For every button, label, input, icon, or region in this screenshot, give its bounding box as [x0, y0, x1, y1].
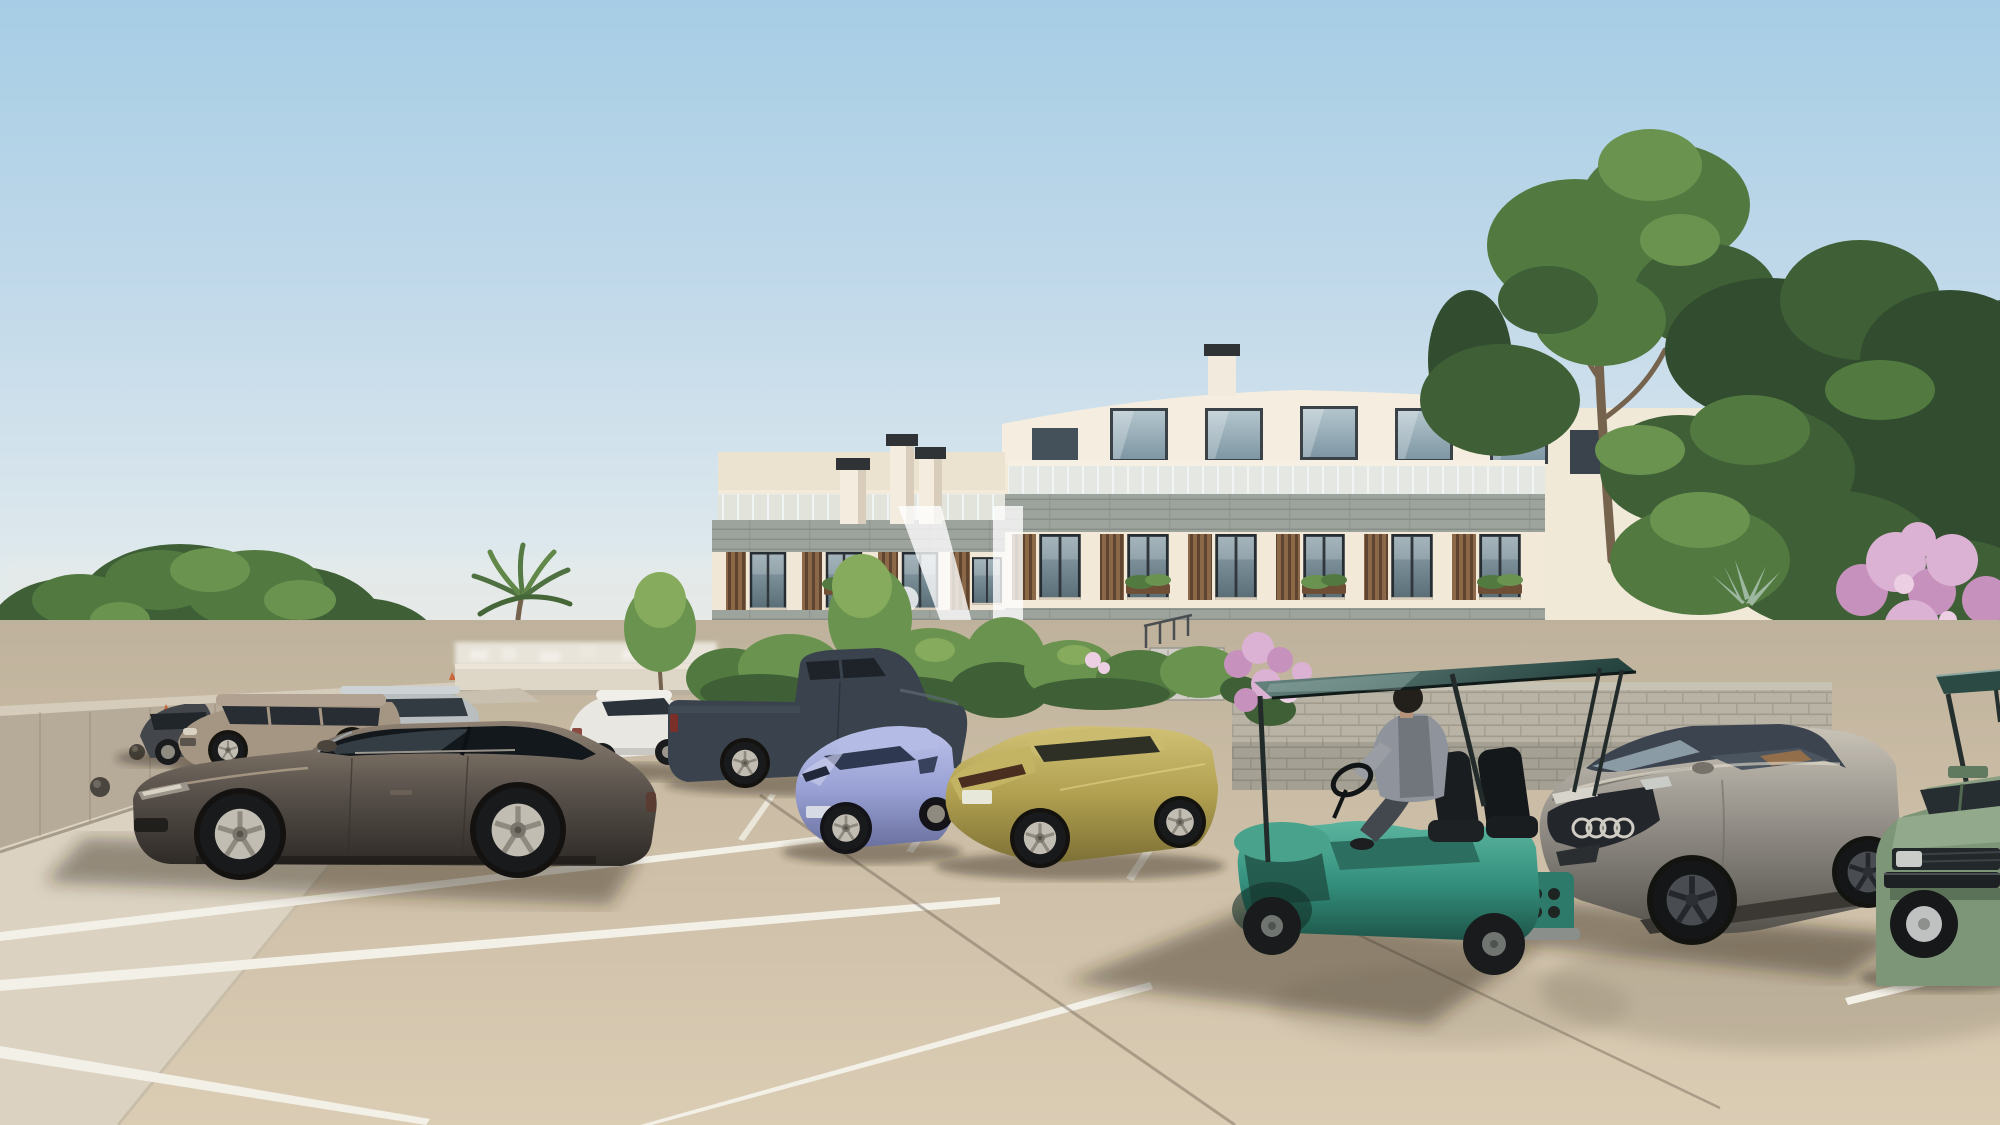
penthouse-window-small	[1032, 428, 1078, 462]
render-canvas	[0, 0, 2000, 1125]
stone-band	[712, 520, 1005, 552]
terrace-coping	[1008, 460, 1545, 466]
window	[1391, 534, 1432, 600]
stone-band	[1002, 494, 1545, 532]
balustrade-posts	[1008, 466, 1545, 494]
penthouse-window	[1110, 408, 1168, 462]
penthouse-window	[1205, 408, 1263, 462]
chimney-cap	[1204, 344, 1240, 356]
wheel	[1158, 800, 1202, 844]
window	[750, 552, 786, 610]
wheel	[724, 742, 766, 784]
driver-shoe	[1350, 838, 1374, 850]
taillight	[646, 792, 656, 812]
wheel	[200, 794, 281, 875]
window	[1039, 534, 1080, 600]
wheel	[1014, 812, 1066, 864]
wheel	[824, 806, 868, 850]
chimney	[1208, 352, 1236, 396]
penthouse-window	[1300, 406, 1358, 460]
side-mirror	[317, 740, 337, 752]
wheel	[1653, 861, 1732, 940]
window	[1215, 534, 1256, 600]
scene	[0, 0, 2000, 1125]
wheel	[476, 788, 560, 872]
front-intake	[134, 818, 168, 832]
